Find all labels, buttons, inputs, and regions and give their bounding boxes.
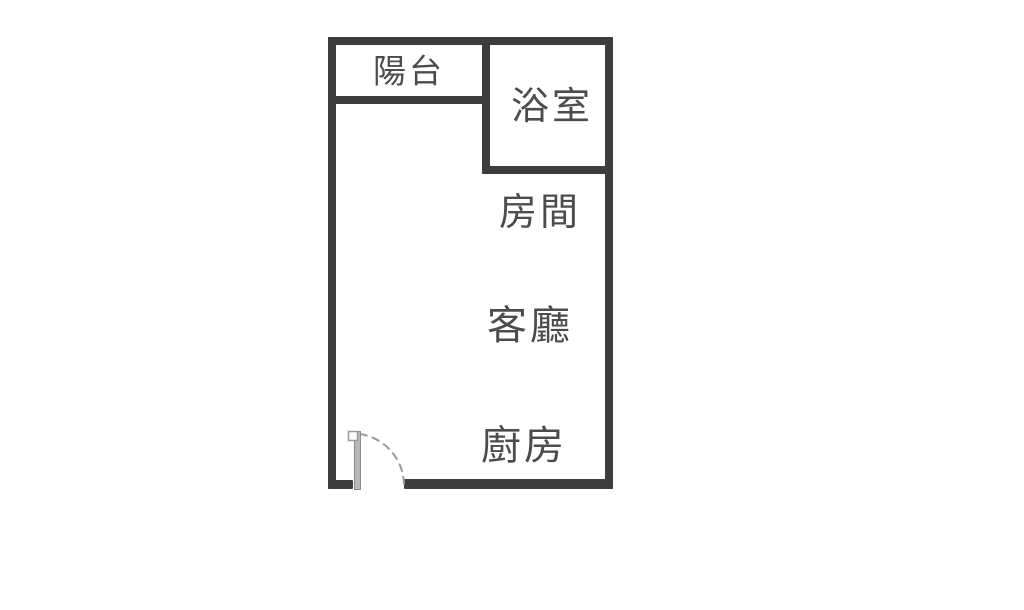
wall-right-exterior bbox=[605, 37, 613, 489]
wall-left-exterior bbox=[328, 37, 336, 489]
wall-bottom-exterior bbox=[404, 479, 613, 489]
room-label-kitchen: 廚房 bbox=[481, 426, 567, 466]
room-label-living-room: 客廳 bbox=[487, 306, 573, 346]
floor-plan: 陽台 浴室 房間 客廳 廚房 bbox=[0, 0, 1024, 610]
room-label-bathroom: 浴室 bbox=[511, 88, 593, 126]
room-label-bedroom: 房間 bbox=[499, 194, 581, 232]
door-swing-arc-icon bbox=[360, 434, 404, 485]
wall-balcony-partition bbox=[328, 96, 490, 104]
door-leaf-icon bbox=[355, 432, 361, 490]
wall-bathroom-left bbox=[482, 37, 490, 174]
door-hinge-icon bbox=[349, 432, 358, 441]
wall-top-exterior bbox=[328, 37, 613, 45]
wall-bottom-door-stub bbox=[328, 480, 353, 489]
room-label-balcony: 陽台 bbox=[373, 55, 445, 88]
wall-bathroom-bottom bbox=[482, 166, 613, 174]
